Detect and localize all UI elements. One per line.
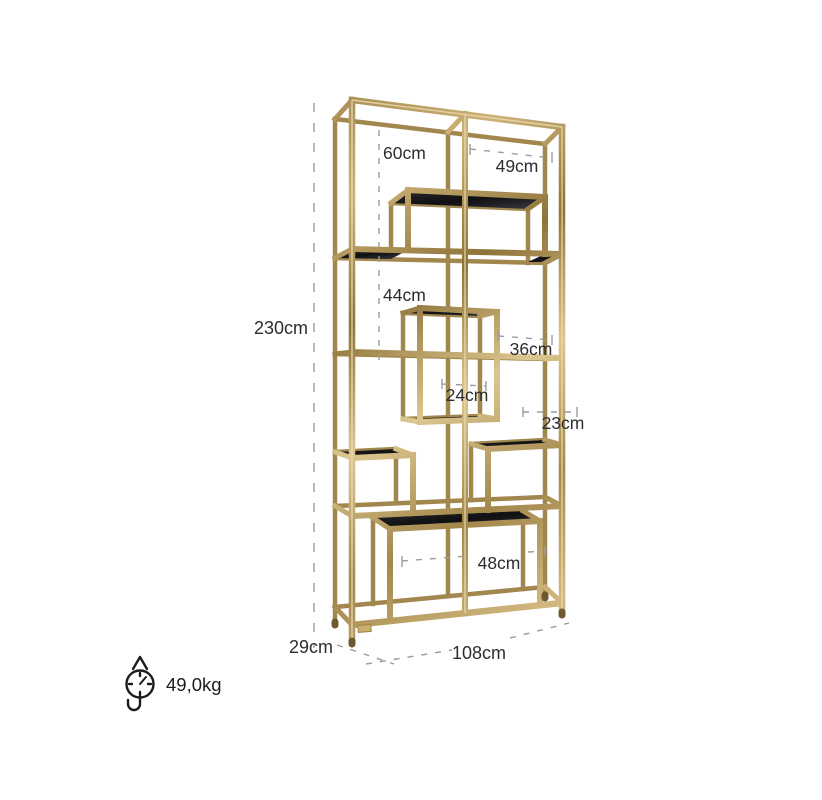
total-width-label: 108cm [452, 643, 506, 663]
mid-right-opening-width-label: 36cm [510, 339, 553, 359]
depth-label: 29cm [289, 637, 333, 657]
top-right-opening-width-label: 49cm [496, 156, 539, 176]
top-section-height-label: 60cm [383, 143, 426, 163]
weight-spec: 49,0kg [127, 657, 222, 710]
right-shelf-section-height-label: 23cm [542, 413, 585, 433]
center-box-width-label: 24cm [446, 385, 489, 405]
weight-value-label: 49,0kg [166, 674, 222, 695]
hanging-scale-icon [127, 657, 154, 710]
brand-sticker [358, 624, 372, 632]
mid-section-height-label: 44cm [383, 285, 426, 305]
etagere-front-frame [352, 100, 562, 642]
etagere-dimension-diagram: 230cm 60cm 49cm 44cm 36cm 24cm 23cm 48cm… [0, 0, 822, 800]
product-dimension-image: 230cm 60cm 49cm 44cm 36cm 24cm 23cm 48cm… [0, 0, 822, 800]
total-height-label: 230cm [254, 318, 308, 338]
bottom-shelf-width-label: 48cm [478, 553, 521, 573]
